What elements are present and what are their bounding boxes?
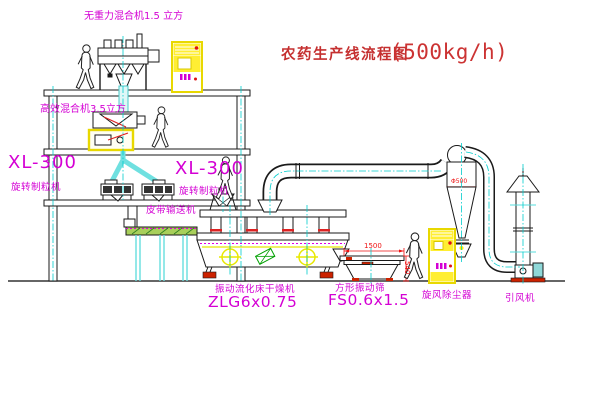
granulator-left-machine [101, 180, 133, 201]
label-belt-conveyor: 皮带输送机 [146, 206, 196, 216]
control-cabinet-cyclone [429, 229, 455, 283]
gravity-free-mixer [98, 34, 159, 112]
process-flow-drawing: 农药生产线流程图 (500kg/h) 无重力混合机1.5 立方 高效混合机3.5… [0, 0, 600, 403]
label-granulator-mid-name: 旋转制粒机 [179, 187, 229, 197]
exhaust-duct [258, 163, 447, 212]
granulator-feed-pipes [111, 151, 159, 183]
label-fan: 引风机 [505, 294, 535, 304]
label-granulator-left-model: XL-300 [8, 154, 77, 172]
induced-draft-fan [511, 263, 545, 282]
square-vibrating-sieve [340, 248, 409, 281]
label-dryer-model: ZLG6x0.75 [208, 295, 297, 311]
granulator-mid-machine [142, 180, 174, 201]
dimension-sieve-height: 540 [403, 261, 410, 274]
drawing-title-capacity: (500kg/h) [390, 42, 508, 63]
label-sieve-model: FS0.6x1.5 [328, 293, 409, 309]
fluid-bed-dryer [197, 210, 349, 278]
worker-roof [76, 45, 93, 89]
worker-floor2 [152, 107, 168, 147]
dimension-cyclone-diameter: Φ500 [451, 179, 467, 185]
label-granulator-mid-model: XL-300 [175, 160, 244, 178]
high-efficiency-mixer [89, 112, 145, 150]
control-cabinet-roof [172, 42, 202, 92]
label-gravity-free-mixer: 无重力混合机1.5 立方 [84, 12, 183, 22]
label-high-efficiency-mixer: 高效混合机3.5立方 [40, 105, 126, 115]
label-granulator-left-name: 旋转制粒机 [11, 183, 61, 193]
belt-conveyor-machine [124, 206, 197, 281]
label-cyclone: 旋风除尘器 [422, 291, 472, 301]
dimension-sieve-width: 1500 [364, 243, 382, 250]
